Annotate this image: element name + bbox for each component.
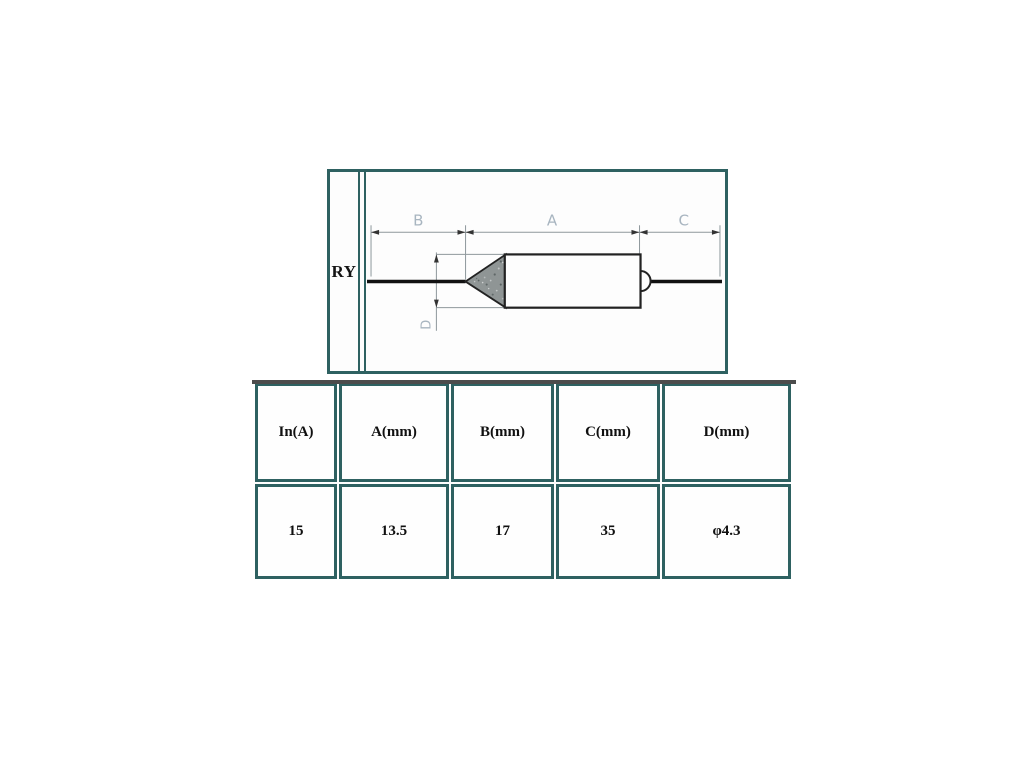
page: RY [0,0,1024,768]
header-cell-c-mm: C(mm) [556,383,660,482]
value-cell-b-mm: 17 [451,484,554,579]
thermal-fuse-technical-drawing: B A C D [366,172,725,371]
dimension-label-d: D [419,320,434,330]
fuse-body [505,254,641,307]
header-cell-a-mm: A(mm) [339,383,449,482]
epoxy-cone [466,254,506,307]
header-cell-b-mm: B(mm) [451,383,554,482]
drawing-frame: RY [327,169,728,374]
drawing-area: B A C D [364,172,725,371]
dimension-label-b: B [413,211,423,229]
series-label: RY [332,262,357,282]
value-cell-in-a: 15 [255,484,337,579]
spec-table: In(A) A(mm) B(mm) C(mm) D(mm) 15 13.5 17… [255,383,791,579]
header-cell-d-mm: D(mm) [662,383,791,482]
dimension-label-c: C [679,211,690,229]
value-cell-a-mm: 13.5 [339,484,449,579]
dimension-label-a: A [547,211,558,229]
header-cell-in-a: In(A) [255,383,337,482]
table-top-shadow-line [252,380,796,384]
series-label-cell: RY [330,172,360,371]
value-cell-c-mm: 35 [556,484,660,579]
terminal-bump [641,271,651,291]
value-cell-d-mm: φ4.3 [662,484,791,579]
